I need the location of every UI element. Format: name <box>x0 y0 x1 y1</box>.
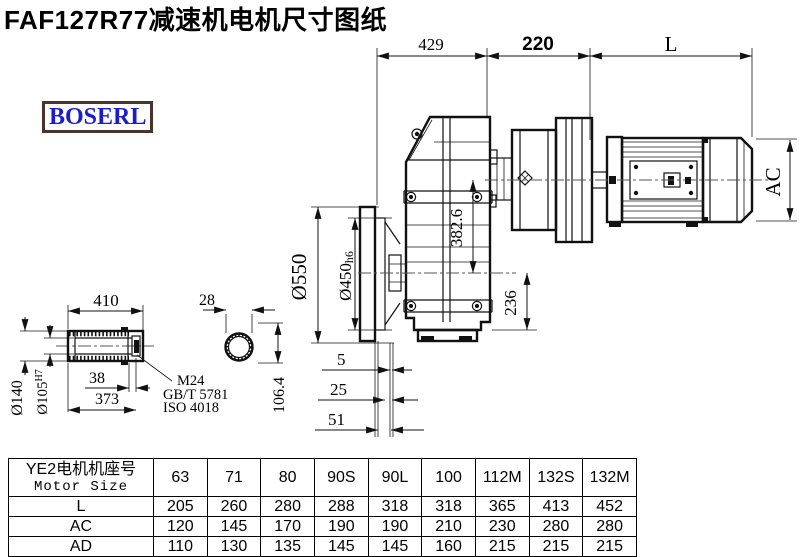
dim-429: 429 <box>418 35 444 54</box>
dim-axis-distance: 382.6 <box>447 209 466 247</box>
dim-shaft-373: 373 <box>95 391 119 408</box>
table-cell: 230 <box>475 517 529 537</box>
main-view-dimensions: Ø550 Ø450h6 382.6 236 AC 5 <box>287 139 797 430</box>
table-cell: 132M <box>583 459 637 497</box>
dim-offset-51: 51 <box>328 410 345 429</box>
row-label: L <box>9 497 154 517</box>
table-cell: 365 <box>475 497 529 517</box>
table-cell: 280 <box>529 517 583 537</box>
table-cell: 280 <box>583 517 637 537</box>
table-cell: 160 <box>422 537 476 557</box>
table-row-AC: AC 120 145 170 190 190 210 230 280 280 <box>9 517 637 537</box>
bolt-icon <box>406 129 481 311</box>
table-header-row: YE2电机机座号 Motor Size 63 71 80 90S 90L 100… <box>9 459 637 497</box>
drawing-sheet: FAF127R77减速机电机尺寸图纸 BOSERL 429 220 L <box>0 0 800 557</box>
table-cell: 112M <box>475 459 529 497</box>
header-en: Motor Size <box>9 479 153 495</box>
output-flange <box>358 207 516 437</box>
table-cell: 215 <box>529 537 583 557</box>
dim-shaft-od: Ø140 <box>9 380 26 416</box>
table-cell: 260 <box>207 497 261 517</box>
dim-shaft-bore: Ø105H7 <box>34 369 51 415</box>
dim-flange-od: Ø550 <box>287 254 311 301</box>
table-cell: 145 <box>368 537 422 557</box>
table-cell: 100 <box>422 459 476 497</box>
table-header-motor-size: YE2电机机座号 Motor Size <box>9 459 154 497</box>
dim-220: 220 <box>522 34 554 55</box>
shaft-detail-view: 410 Ø140 Ø105H7 38 373 <box>9 291 228 416</box>
table-row-AD: AD 110 130 135 145 145 160 215 215 215 <box>9 537 637 557</box>
table-cell: 318 <box>368 497 422 517</box>
table-cell: 205 <box>154 497 208 517</box>
dim-spigot: Ø450h6 <box>336 251 356 301</box>
motor-size-table: YE2电机机座号 Motor Size 63 71 80 90S 90L 100… <box>8 458 637 557</box>
row-label: AC <box>9 517 154 537</box>
table-cell: 215 <box>583 537 637 557</box>
row-label: AD <box>9 537 154 557</box>
header-cn: YE2电机机座号 <box>9 461 153 479</box>
table-cell: 210 <box>422 517 476 537</box>
table-cell: 135 <box>261 537 315 557</box>
table-cell: 170 <box>261 517 315 537</box>
table-cell: 190 <box>314 517 368 537</box>
table-cell: 71 <box>207 459 261 497</box>
table-cell: 110 <box>154 537 208 557</box>
table-cell: 90S <box>314 459 368 497</box>
dim-shaft-38: 38 <box>89 370 105 387</box>
table-cell: 190 <box>368 517 422 537</box>
note-standard-iso: ISO 4018 <box>163 400 219 416</box>
dim-motor-od: AC <box>761 167 785 196</box>
table-cell: 90L <box>368 459 422 497</box>
dim-shaft-410: 410 <box>93 291 119 310</box>
table-cell: 132S <box>529 459 583 497</box>
table-cell: 215 <box>475 537 529 557</box>
dim-section-height: 106.4 <box>271 377 288 413</box>
table-cell: 130 <box>207 537 261 557</box>
table-cell: 288 <box>314 497 368 517</box>
table-row-L: L 205 260 280 288 318 318 365 413 452 <box>9 497 637 517</box>
dim-section-28: 28 <box>199 292 215 309</box>
table-cell: 413 <box>529 497 583 517</box>
dim-offset-5: 5 <box>337 350 346 369</box>
table-cell: 80 <box>261 459 315 497</box>
dim-offset-25: 25 <box>330 380 347 399</box>
dim-axis-to-base: 236 <box>501 290 520 316</box>
dim-L: L <box>665 32 678 56</box>
table-cell: 280 <box>261 497 315 517</box>
table-cell: 63 <box>154 459 208 497</box>
table-cell: 452 <box>583 497 637 517</box>
table-cell: 145 <box>207 517 261 537</box>
table-cell: 318 <box>422 497 476 517</box>
table-cell: 120 <box>154 517 208 537</box>
table-cell: 145 <box>314 537 368 557</box>
